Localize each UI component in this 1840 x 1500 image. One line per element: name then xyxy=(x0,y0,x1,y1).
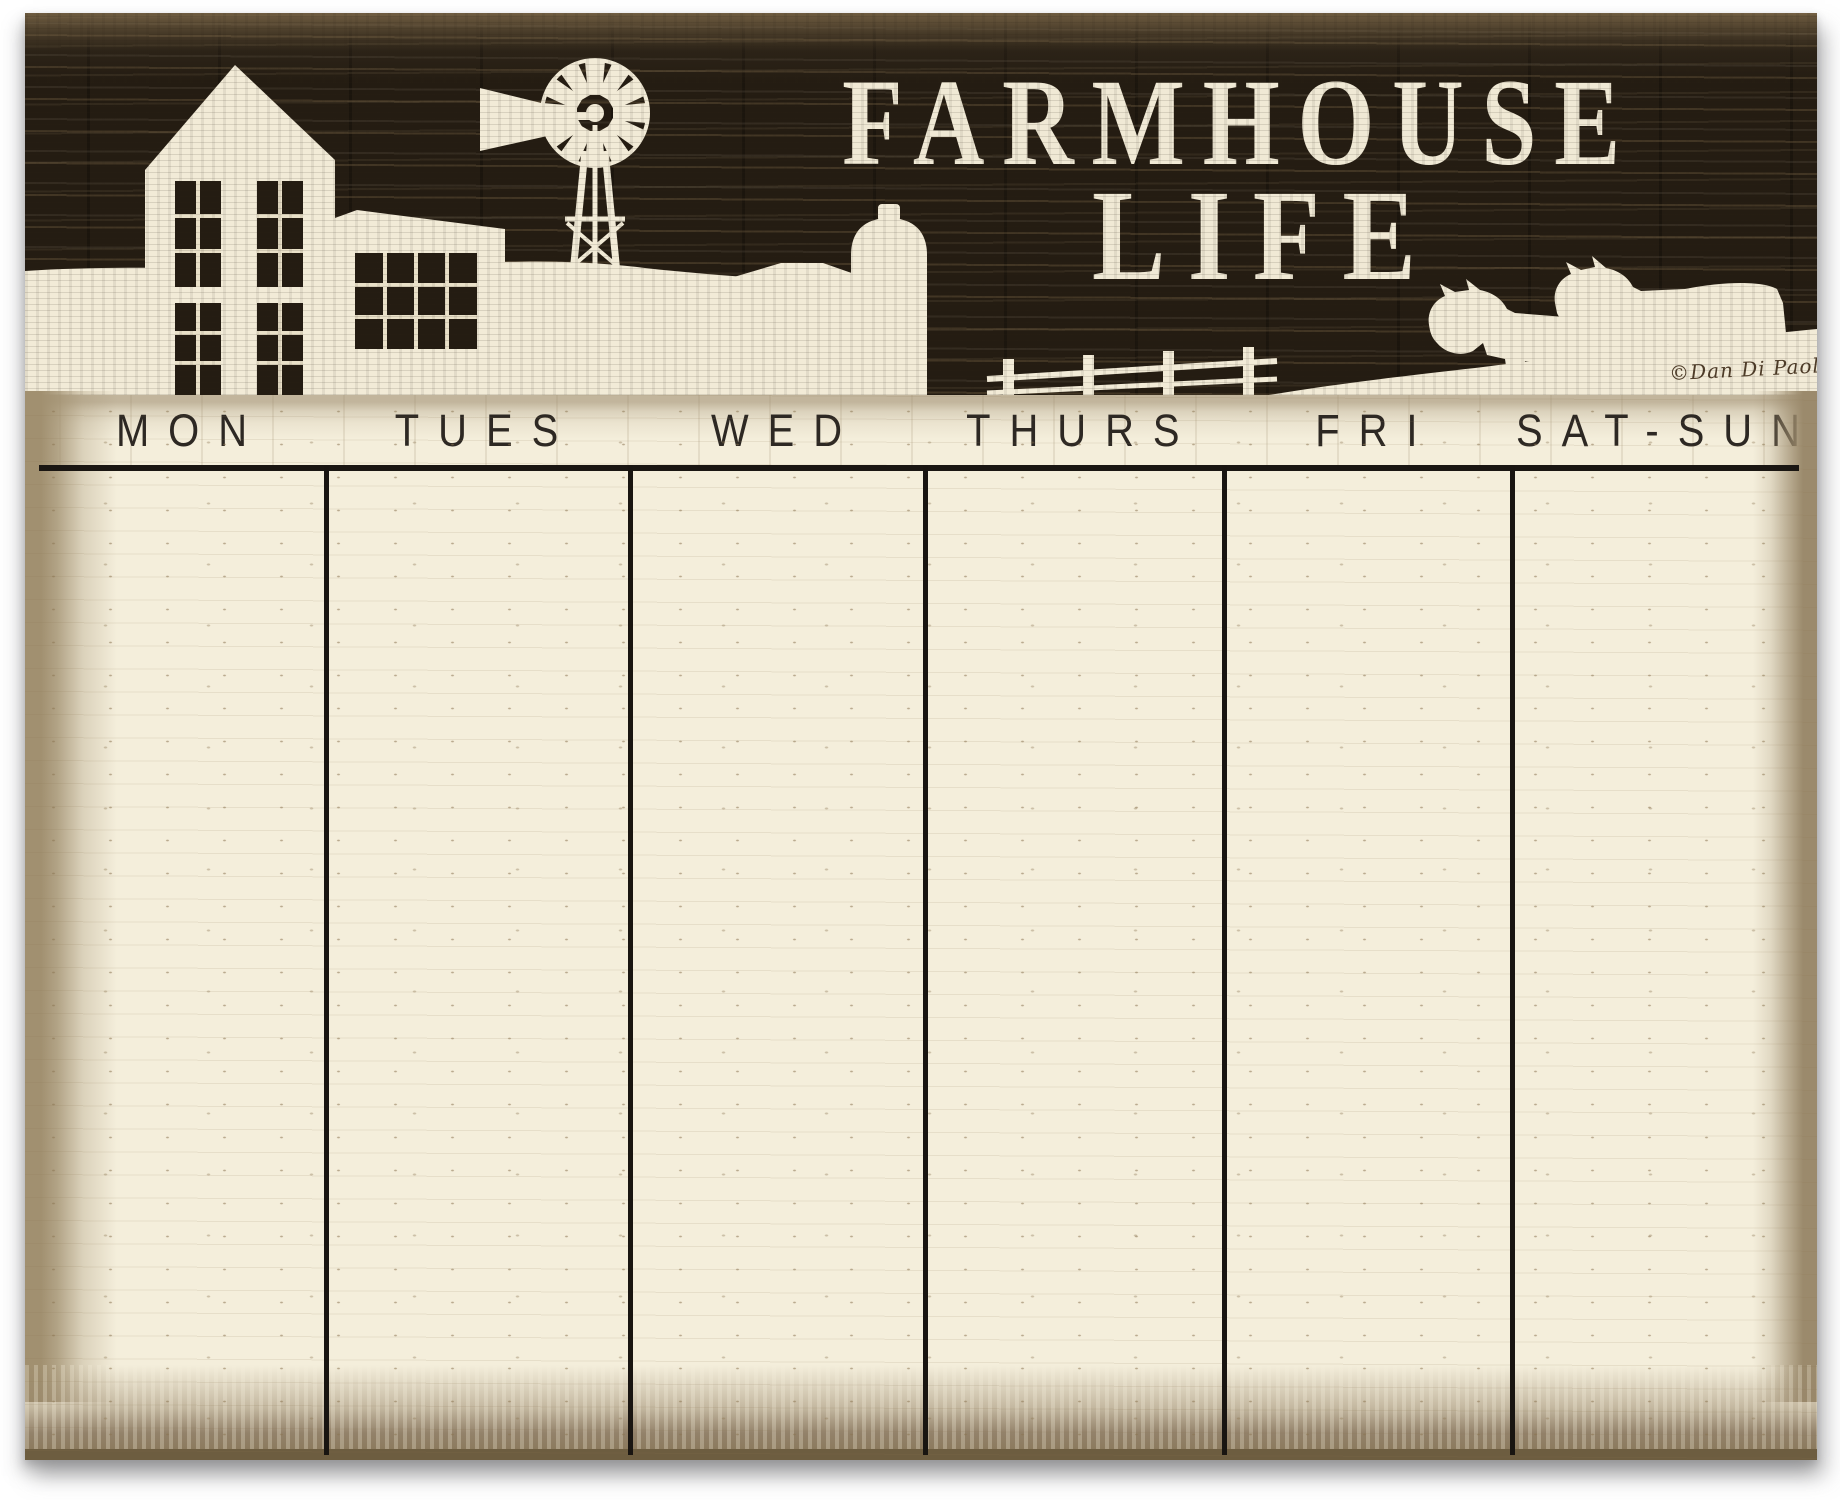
border-bottom xyxy=(25,1365,1817,1460)
paper-grain-overlay xyxy=(25,395,1817,1460)
header-rule xyxy=(39,465,1799,471)
day-header-tues: TUES xyxy=(324,401,628,461)
fence-icon xyxy=(987,347,1277,395)
board-title-line2: LIFE xyxy=(1092,171,1438,301)
border-right xyxy=(1753,391,1817,1402)
planner-board: FARMHOUSE LIFE ©Dan Di Paolo MON TUES WE… xyxy=(25,13,1817,1460)
column-divider-4 xyxy=(1222,465,1227,1455)
day-label: TUES xyxy=(395,405,577,457)
day-label: WED xyxy=(710,405,860,457)
day-header-thurs: THURS xyxy=(923,401,1222,461)
column-divider-5 xyxy=(1510,465,1515,1455)
border-left xyxy=(25,391,117,1402)
day-header-fri: FRI xyxy=(1222,401,1510,461)
day-header-wed: WED xyxy=(628,401,923,461)
day-label: FRI xyxy=(1315,405,1436,457)
product-page: FARMHOUSE LIFE ©Dan Di Paolo MON TUES WE… xyxy=(0,0,1840,1500)
day-label: MON xyxy=(115,405,265,457)
silo-icon xyxy=(851,204,927,395)
day-label: THURS xyxy=(966,405,1198,457)
column-divider-3 xyxy=(923,465,928,1455)
column-divider-1 xyxy=(324,465,329,1455)
header-art: FARMHOUSE LIFE ©Dan Di Paolo xyxy=(25,13,1817,395)
column-divider-2 xyxy=(628,465,633,1455)
